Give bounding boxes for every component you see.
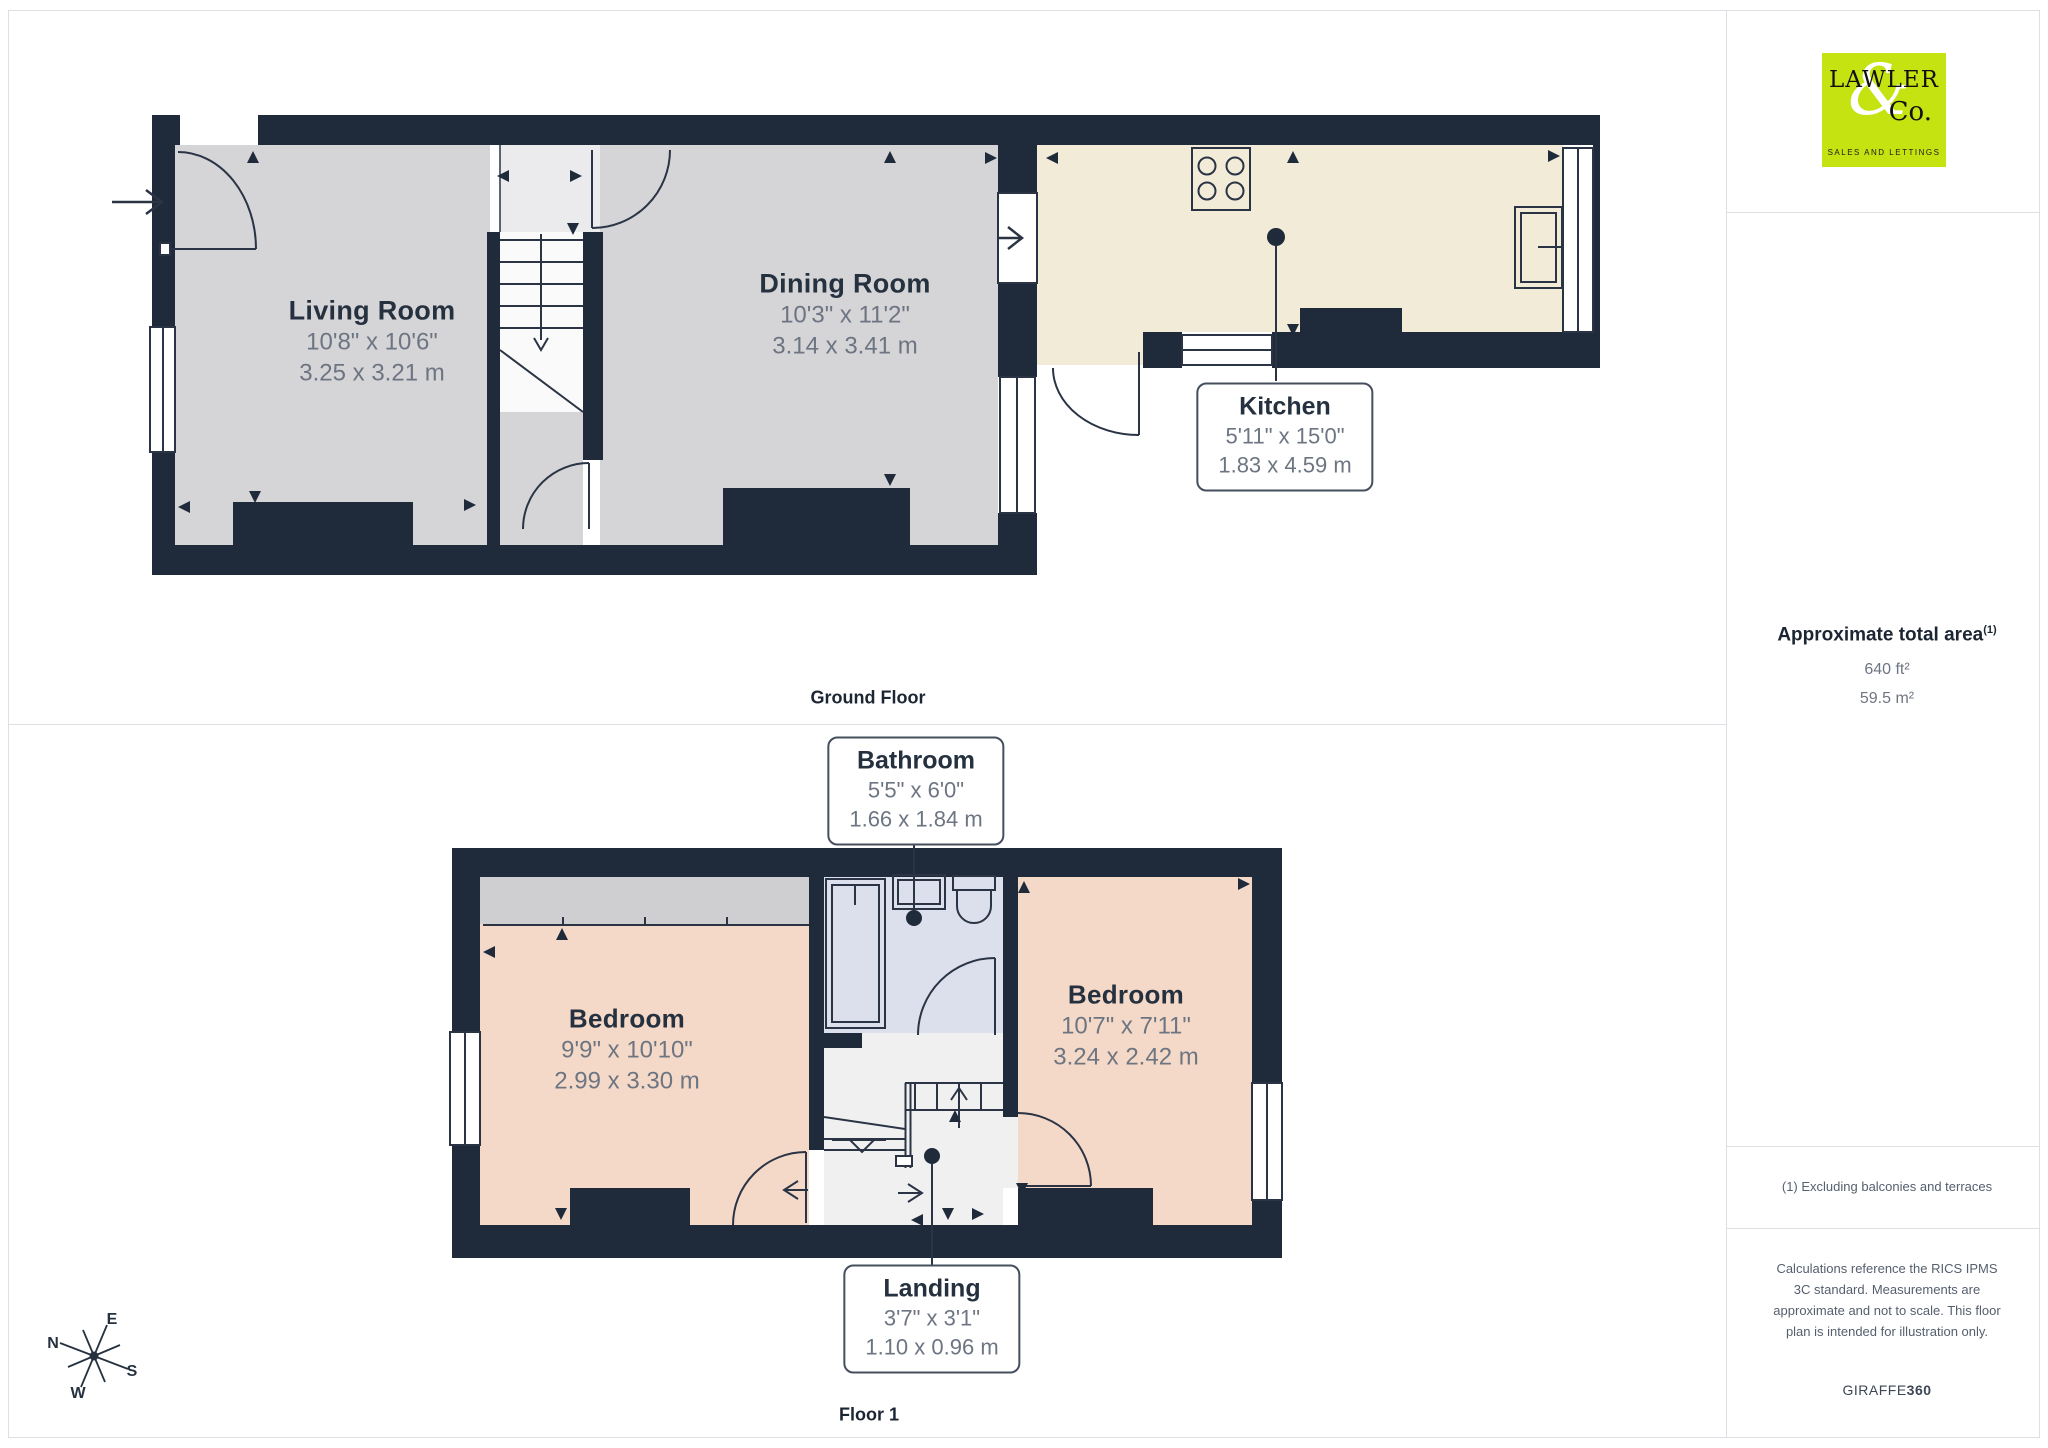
compass-s: S [127,1363,138,1380]
hallway-floor [500,145,600,232]
first-floor-label: Floor 1 [839,1405,899,1426]
room-label-bedroom2: Bedroom 10'7" x 7'11" 3.24 x 2.42 m [1053,980,1198,1073]
logo-word1: LAWLER [1822,67,1946,93]
agency-logo: & LAWLER Co. SALES AND LETTINGS [1822,53,1946,167]
bedroom1-wardrobe [480,877,809,924]
giraffe360-brand: GIRAFFE360 [1726,1382,2048,1398]
logo-tagline: SALES AND LETTINGS [1822,148,1946,157]
kitchen-floor [1037,145,1563,332]
landing-floor [824,1033,1003,1225]
total-area-imperial: 640 ft² [1726,661,2048,679]
living-chimney-breast [233,502,413,547]
total-area-title: Approximate total area(1) [1726,624,2048,646]
bedroom2-chimney-breast [1018,1188,1153,1225]
kitchen-floor-lower [1037,332,1143,365]
bedroom1-chimney-breast [570,1188,690,1225]
kitchen-wall-stub [1300,308,1402,334]
kitchen-back-door-swing [1053,368,1139,435]
dining-chimney-breast [723,488,910,546]
total-area-metric: 59.5 m² [1726,690,2048,708]
disclaimer-text: Calculations reference the RICS IPMS 3C … [1768,1258,2006,1342]
room-label-living-room: Living Room 10'8" x 10'6" 3.25 x 3.21 m [289,296,456,389]
understair-floor [500,412,583,545]
compass-w: W [70,1385,86,1402]
front-door-stub [160,243,170,255]
compass-e: E [107,1311,118,1328]
room-label-bedroom1: Bedroom 9'9" x 10'10" 2.99 x 3.30 m [554,1004,699,1097]
stairs-threshold [896,1156,912,1166]
balconies-footnote: (1) Excluding balconies and terraces [1726,1179,2048,1194]
callout-kitchen: Kitchen 5'11" x 15'0" 1.83 x 4.59 m [1196,383,1373,492]
floor-plan-canvas: N E S W [0,0,2048,1448]
callout-landing: Landing 3'7" x 3'1" 1.10 x 0.96 m [843,1265,1020,1374]
ground-floor-label: Ground Floor [811,688,926,709]
total-area-footnote-marker: (1) [1983,624,1996,636]
compass-n: N [47,1335,59,1352]
callout-bathroom: Bathroom 5'5" x 6'0" 1.66 x 1.84 m [827,737,1004,846]
room-label-dining-room: Dining Room 10'3" x 11'2" 3.14 x 3.41 m [759,269,930,362]
logo-word2: Co. [1889,97,1932,127]
compass-rose: N E S W [47,1311,137,1402]
